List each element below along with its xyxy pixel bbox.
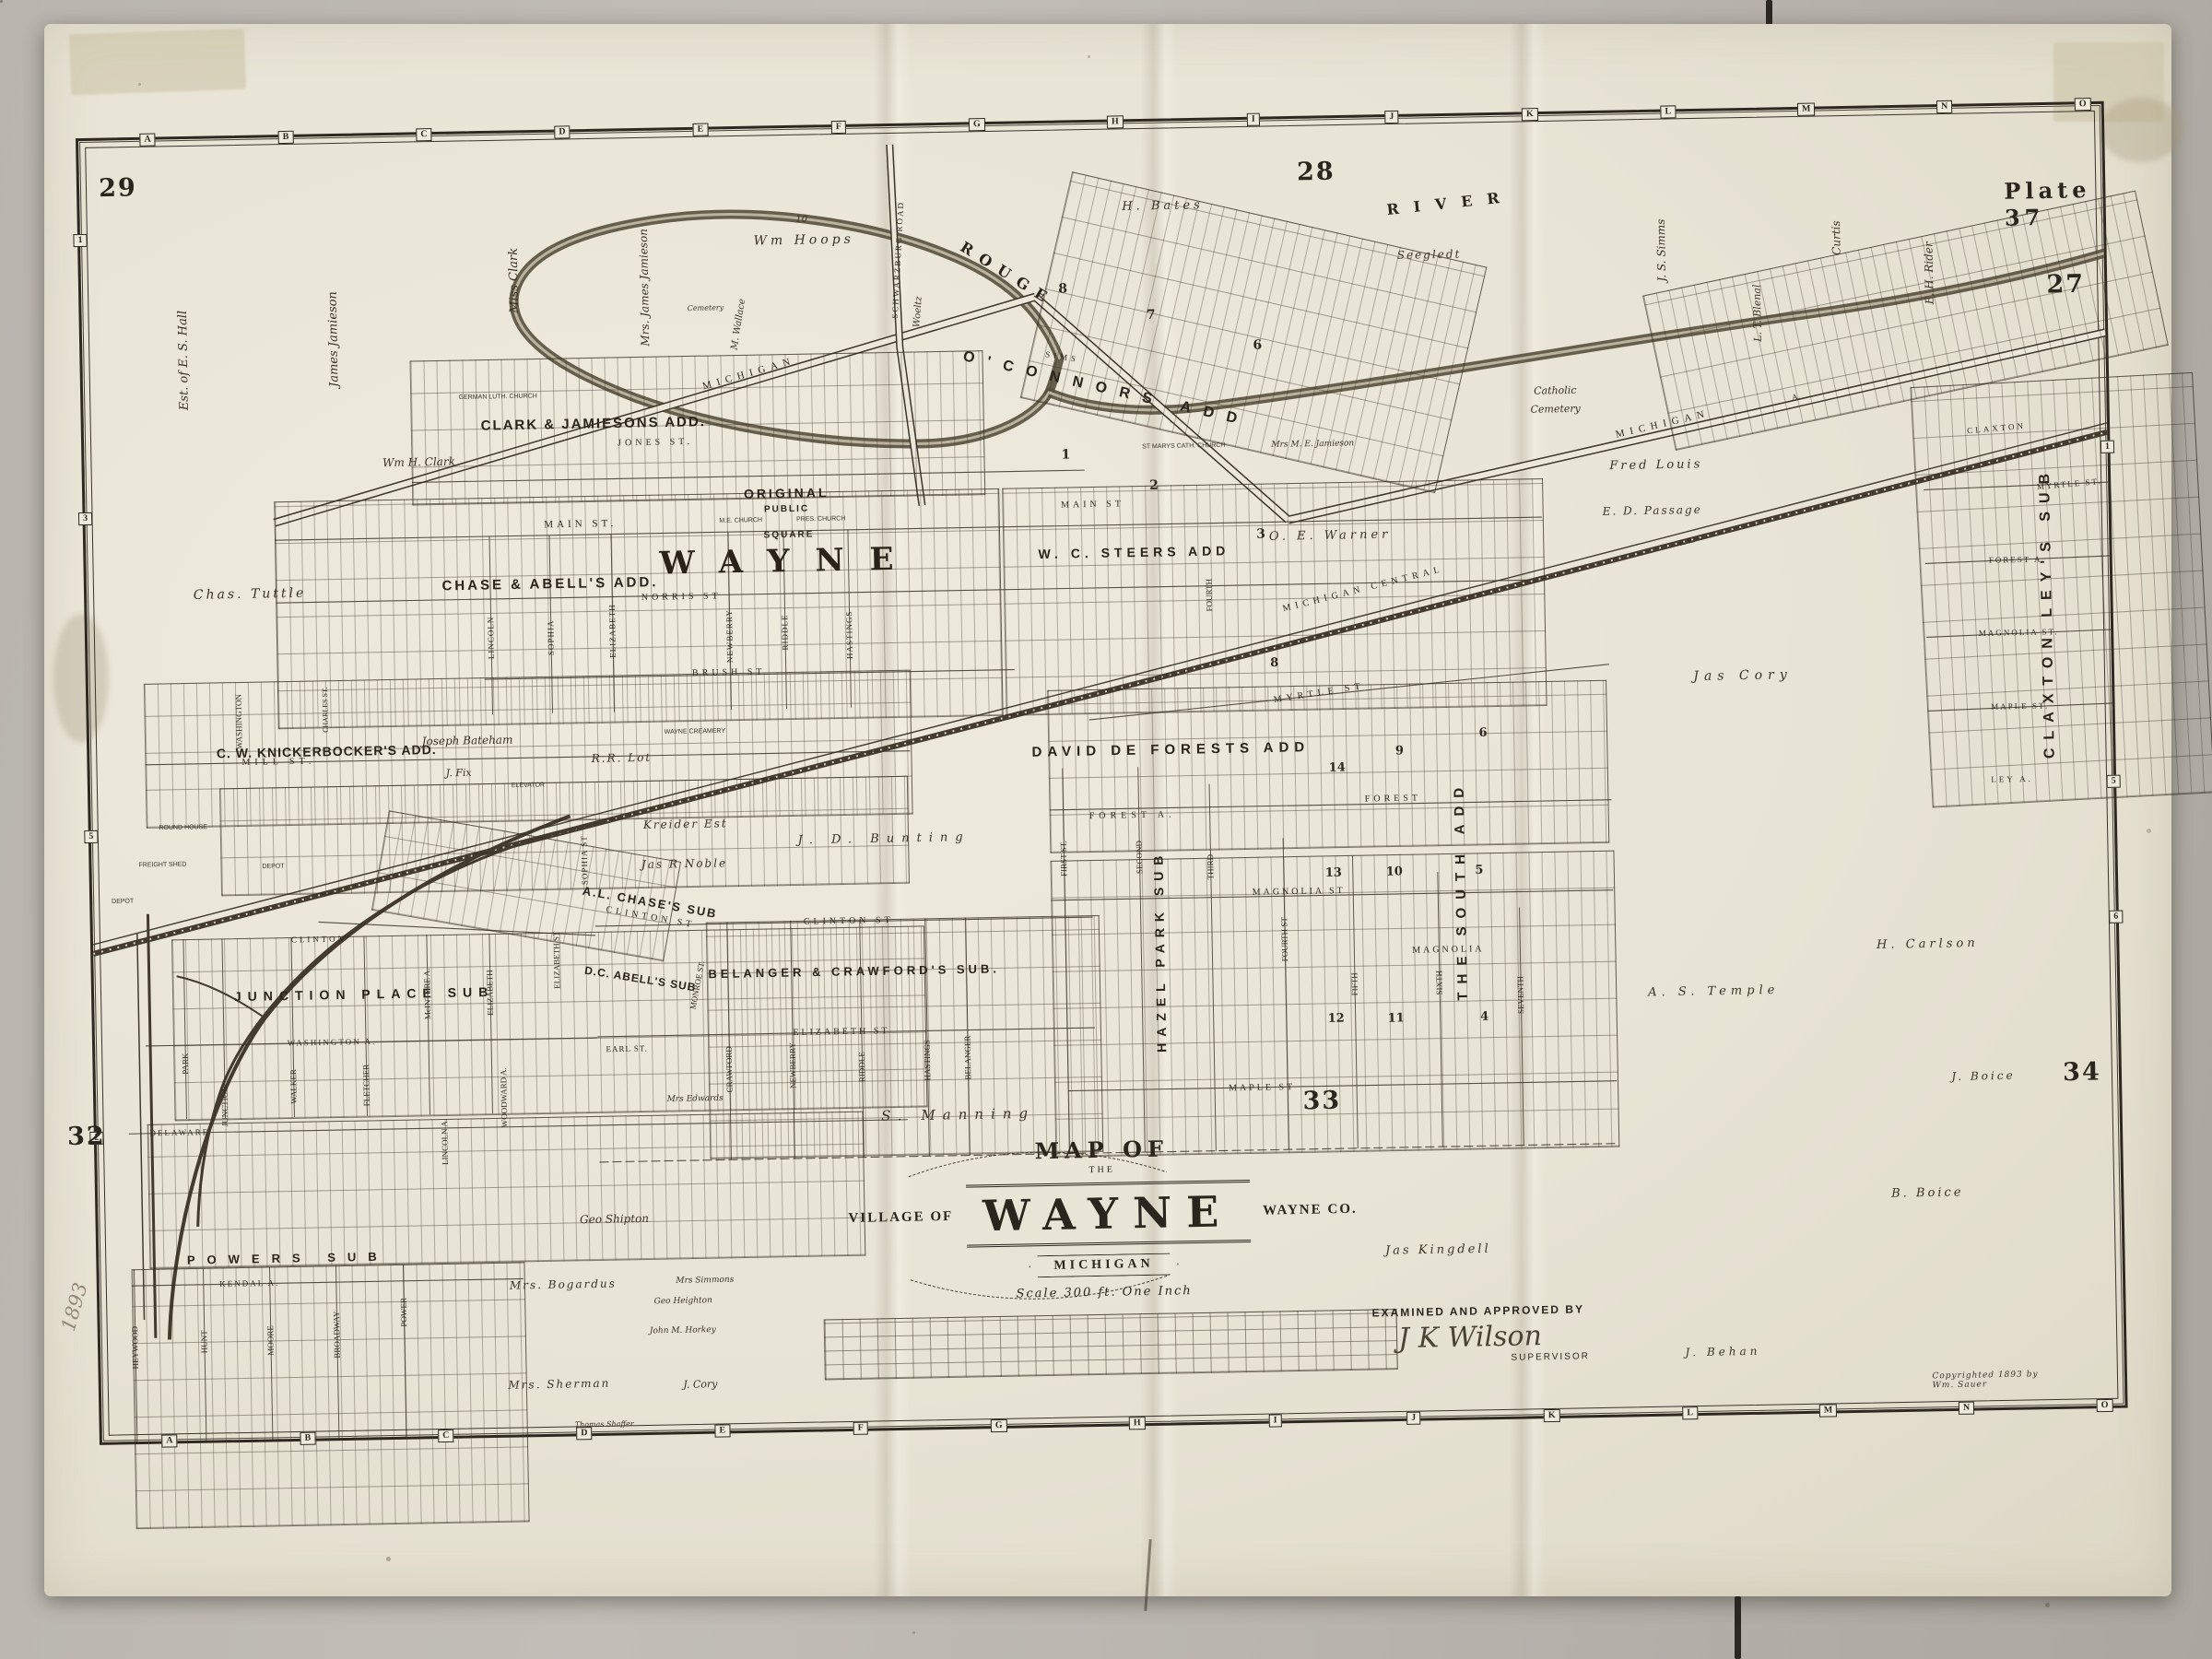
label-mrs-me-jamieson: Mrs M. E. Jamieson	[1271, 440, 1354, 450]
border-letter-top-A: A	[139, 134, 155, 147]
label-j-d-bunting: J. D. Bunting	[797, 831, 970, 846]
label-sophia-v: SOPHIA	[547, 619, 556, 655]
label-forest-e: FOREST	[1365, 794, 1421, 804]
label-square: SQUARE	[764, 531, 815, 541]
label-depot-1: DEPOT	[262, 864, 284, 870]
label-clinton-st-c: CLINTON ST	[804, 916, 894, 927]
cartouche-county: WAYNE CO.	[1263, 1201, 1358, 1218]
dust-specks	[0, 0, 3, 3]
label-first-st-v: FIRST ST.	[1060, 841, 1069, 877]
label-h-bates: H. Bates	[1122, 199, 1204, 213]
label-charles-st-v: CHARLES ST.	[322, 688, 330, 733]
label-b-boice: B. Boice	[1891, 1186, 1964, 1199]
label-blk-8: 8	[1058, 282, 1067, 295]
border-number-right-6: 6	[2109, 911, 2123, 924]
label-jas-cory: Jas Cory	[1693, 668, 1793, 683]
label-mrs-simmons: Mrs Simmons	[676, 1277, 734, 1286]
label-magnolia-e: MAGNOLIA	[1412, 945, 1485, 955]
label-newberry-v: NEWBERRY	[725, 609, 735, 663]
label-mrs-edwards: Mrs Edwards	[667, 1095, 724, 1104]
label-fourth-v2: FOURTH	[1205, 579, 1214, 612]
label-blk-9: 9	[1395, 745, 1404, 757]
label-junction-v: JUNCTION	[220, 1086, 229, 1126]
label-blk-2: 2	[1149, 479, 1159, 492]
label-sec-34: 34	[2063, 1060, 2101, 1086]
label-pres-church: PRES. CHURCH	[796, 515, 845, 523]
label-elizabeth-st-c: ELIZABETH ST	[793, 1027, 889, 1038]
label-wm-hoops: Wm Hoops	[753, 233, 854, 248]
label-blk-6: 6	[1253, 339, 1262, 352]
border-letter-top-L: L	[1660, 105, 1676, 118]
label-sec-28: 28	[1297, 159, 1335, 185]
label-geo-shipton: Geo Shipton	[580, 1213, 649, 1225]
border-letter-bottom-B: B	[300, 1432, 315, 1445]
label-blk-13: 13	[1325, 867, 1342, 879]
label-jones-st: JONES ST.	[618, 438, 693, 448]
district-14	[1910, 372, 2212, 808]
label-blk-5: 5	[1475, 865, 1483, 877]
label-j-boice: J. Boice	[1951, 1070, 2015, 1082]
label-depot-2: DEPOT	[112, 899, 134, 905]
label-ley-a: LEY A.	[1991, 775, 2033, 784]
label-blk-7: 7	[1147, 309, 1156, 322]
label-blk-12: 12	[1328, 1013, 1345, 1025]
border-letter-bottom-I: I	[1269, 1414, 1282, 1427]
label-magnolia-st-w: MAGNOLIA ST	[1253, 887, 1346, 898]
label-chase-abells-add: CHASE & ABELL'S ADD.	[441, 575, 658, 593]
border-letter-top-I: I	[1247, 113, 1260, 126]
label-j-behan: J. Behan	[1685, 1346, 1760, 1359]
label-sec-33: 33	[1302, 1088, 1341, 1114]
label-fifth-v: FIFTH	[1350, 972, 1359, 995]
border-letter-top-M: M	[1797, 103, 1816, 116]
label-forest-a-r: FOREST A.	[1989, 556, 2046, 565]
label-belanger-v: BELANGER	[964, 1035, 973, 1079]
label-hastings-v: HASTINGS	[845, 610, 854, 659]
title-cartouche: MAP OF THE VILLAGE OF WAYNE WAYNE CO. MI…	[843, 1132, 1362, 1304]
label-fletcher-v: FLETCHER	[362, 1065, 371, 1107]
label-j-fix: J. Fix	[446, 768, 472, 779]
district-13	[132, 1262, 530, 1529]
label-forest-a-w: FOREST A.	[1089, 810, 1176, 821]
label-o-e-warner: O. E. Warner	[1269, 529, 1392, 543]
border-letter-top-D: D	[554, 125, 570, 138]
label-crawford-v: CRAWFORD	[725, 1046, 735, 1092]
label-seegledt: Seegledt	[1397, 249, 1462, 261]
label-mill-st: MILL ST.	[241, 757, 315, 767]
border-number-left-1: 1	[73, 234, 87, 247]
label-round-house: ROUND HOUSE	[159, 824, 207, 831]
label-blk-10: 10	[1386, 865, 1403, 877]
border-letter-bottom-M: M	[1819, 1404, 1838, 1417]
label-hunt-v: HUNT	[200, 1330, 208, 1353]
photo-of-map: 1893	[0, 0, 2212, 1659]
label-j-cory-2: J. Cory	[683, 1379, 717, 1390]
border-letter-bottom-A: A	[161, 1434, 177, 1447]
label-fred-louis: Fred Louis	[1609, 458, 1702, 472]
border-letter-bottom-J: J	[1406, 1412, 1420, 1425]
district-11	[171, 925, 927, 1121]
label-wc-steers-add: W. C. STEERS ADD	[1038, 544, 1230, 560]
border-letter-bottom-E: E	[714, 1424, 730, 1437]
label-michigan-a: A.	[1791, 393, 1801, 403]
border-letter-top-F: F	[831, 121, 846, 134]
tape-patch	[69, 29, 246, 96]
label-blk-4: 4	[1480, 1011, 1488, 1023]
label-j-s-simms: J. S. Simms	[1655, 219, 1667, 282]
border-letter-top-C: C	[416, 128, 431, 141]
border-letter-top-H: H	[1107, 115, 1124, 128]
border-letter-top-B: B	[278, 131, 294, 144]
label-washington-a: WASHINGTON A.	[288, 1038, 376, 1048]
label-riddle-v2: RIDDLE	[858, 1052, 867, 1082]
label-blk-1: 1	[1061, 448, 1070, 461]
label-elizabeth-v: ELIZABETH	[608, 604, 618, 658]
label-elizabeth-st-v3: ELIZABETH ST	[552, 931, 561, 988]
label-rr-lot: R.R. Lot	[592, 752, 653, 764]
label-heywood-v: HEYWOOD	[131, 1326, 140, 1370]
border-letter-bottom-N: N	[1959, 1402, 1974, 1415]
label-the-south-add: THE SOUTH ADD	[1453, 780, 1470, 1001]
label-earl-st: EARL ST.	[606, 1044, 648, 1053]
label-fourth-st-v: FOURTH ST	[1280, 917, 1289, 961]
border-letter-bottom-L: L	[1682, 1406, 1698, 1419]
label-cemetery2: Cemetery	[1530, 404, 1580, 415]
label-mrs-bogardus: Mrs. Bogardus	[510, 1278, 617, 1291]
label-h-carlson: H. Carlson	[1877, 937, 1979, 951]
label-blk-11: 11	[1388, 1012, 1405, 1024]
label-second-v: SECOND	[1135, 841, 1145, 874]
label-mcintyre-v: McINTYRE A.	[423, 968, 432, 1019]
label-park-v: PARK	[182, 1053, 190, 1074]
label-e-d-passage: E. D. Passage	[1603, 504, 1702, 517]
label-catholic: Catholic	[1534, 385, 1577, 396]
border-letter-bottom-C: C	[438, 1430, 453, 1442]
label-miss-clark: Miss Clark	[508, 248, 521, 313]
label-elizabeth-v2: ELIZABETH	[486, 970, 495, 1016]
label-main-st-w: MAIN ST.	[544, 519, 617, 530]
plate-number: Plate 37	[2004, 176, 2103, 231]
supervisor-signature: J K Wilson	[1398, 1318, 1677, 1356]
label-curtis: Curtis	[1830, 220, 1842, 255]
label-hazel-park-sub: HAZEL PARK SUB	[1151, 849, 1168, 1053]
border-letter-bottom-G: G	[991, 1419, 1007, 1432]
label-woodward-a-v: WOODWARD A.	[500, 1067, 509, 1127]
district-2	[1002, 478, 1547, 716]
label-seventh-v: SEVENTH	[1516, 976, 1525, 1014]
label-sixth-v: SIXTH	[1435, 971, 1443, 995]
label-washington-v: WASHINGTON	[235, 694, 244, 749]
label-blk-8b: 8	[1270, 657, 1278, 669]
label-freight-shed: FREIGHT SHED	[138, 862, 186, 869]
border-letter-top-E: E	[692, 124, 708, 136]
label-cemetery-sm: Cemetery	[688, 304, 724, 312]
label-hastings-v2: HASTINGS	[924, 1040, 933, 1081]
label-newberry-v2: NEWBERRY	[789, 1042, 798, 1088]
map-paper: 1893	[44, 24, 2171, 1596]
scale-grid	[824, 1309, 1398, 1380]
approval-block: EXAMINED AND APPROVED BY J K Wilson SUPE…	[1371, 1301, 1677, 1366]
label-s-manning: S. Manning	[881, 1107, 1035, 1124]
label-riddle-v: RIDDLE	[781, 615, 790, 651]
label-blk-3: 3	[1256, 528, 1265, 541]
border-letter-bottom-K: K	[1544, 1409, 1560, 1422]
handwritten-year: 1893	[57, 1280, 92, 1334]
label-main-st-e: MAIN ST	[1061, 500, 1124, 510]
border-letter-bottom-F: F	[853, 1422, 868, 1435]
label-wayne-creamery: WAYNE CREAMERY	[665, 728, 726, 735]
label-est-es-hall: Est. of E. S. Hall	[177, 311, 191, 411]
label-maple-st-r: MAPLE ST.	[1991, 701, 2049, 711]
label-lincoln-v: LINCOLN	[487, 617, 496, 660]
stain	[2100, 98, 2183, 162]
border-number-left-3: 3	[78, 512, 92, 525]
label-third-v: THIRD	[1206, 854, 1216, 880]
label-l-t-blenal: L. T. Blenal	[1752, 284, 1763, 341]
paper-tear	[1144, 1539, 1151, 1611]
label-norris-st: NORRIS ST	[641, 592, 722, 603]
label-wayne-big: WAYNE	[659, 543, 920, 579]
border-letter-top-O: O	[2075, 98, 2091, 111]
label-maple-st-c: MAPLE ST	[1229, 1083, 1295, 1093]
label-jas-kingdell: Jas Kingdell	[1385, 1243, 1491, 1257]
border-letter-top-G: G	[969, 118, 985, 131]
label-kendal-a: KENDAL A.	[219, 1279, 279, 1288]
label-clinton-bl: CLINTON	[291, 935, 347, 944]
copyright-line: Copyrighted 1893 by Wm. Sauer	[1932, 1370, 2060, 1391]
label-public: PUBLIC	[764, 505, 809, 515]
label-powers-sub: POWERS SUB	[187, 1251, 389, 1266]
map-frame: ABCDEFGHIJKLMNOABCDEFGHIJKLMNO1352156 29…	[76, 101, 2128, 1445]
label-mrs-sherman: Mrs. Sherman	[508, 1378, 610, 1391]
border-number-left-5: 5	[84, 830, 98, 843]
label-sophia-st-v2: SOPHIA ST	[580, 835, 589, 885]
label-thomas-shaffer: Thomas Shaffer	[575, 1420, 634, 1429]
cartouche-state: MICHIGAN	[1029, 1253, 1179, 1277]
cartouche-village-of: VILLAGE OF	[848, 1208, 953, 1226]
label-walker-v: WALKER	[289, 1069, 299, 1104]
label-blk-14: 14	[1329, 761, 1346, 773]
table-seam-bottom	[1735, 1596, 1741, 1659]
label-wm-h-clark: Wm H. Clark	[382, 456, 455, 468]
border-letter-top-N: N	[1936, 100, 1952, 113]
label-magnolia-st-r: MAGNOLIA ST.	[1979, 628, 2059, 638]
border-number-right-5: 5	[2107, 775, 2121, 788]
label-john-m-horkey: John M. Horkey	[650, 1326, 716, 1335]
label-original: ORIGINAL	[744, 486, 829, 500]
label-a-s-temple: A. S. Temple	[1648, 984, 1779, 999]
border-letter-top-K: K	[1522, 108, 1538, 121]
label-broadway-v: BROADWAY	[333, 1311, 342, 1358]
label-brush-st: BRUSH ST	[692, 668, 766, 678]
district-12	[147, 1112, 866, 1269]
label-blk-6b: 6	[1478, 727, 1487, 739]
label-sec-27: 27	[2046, 272, 2085, 298]
label-elevator: ELEVATOR	[512, 782, 545, 789]
label-me-church: M.E. CHURCH	[719, 517, 762, 524]
label-moore-v: MOORE	[266, 1325, 276, 1356]
border-letter-top-J: J	[1384, 111, 1398, 124]
border-number-right-1: 1	[2100, 441, 2114, 453]
label-lincoln-a-v: LINCOLN A.	[441, 1119, 450, 1165]
label-clark-jamiesons-add: CLARK & JAMIESONS ADD.	[481, 415, 707, 432]
cartouche-town-name: WAYNE	[982, 1186, 1234, 1241]
label-e-h-rider: E. H. Rider	[1923, 241, 1935, 304]
label-chas-tuttle: Chas. Tuttle	[194, 587, 307, 602]
label-geo-heighton: Geo Heighton	[654, 1297, 712, 1306]
label-delaware: DELAWARE	[149, 1128, 209, 1137]
label-wm-hoops-10: 10	[795, 216, 807, 225]
label-james-jamieson: James Jamieson	[327, 291, 341, 387]
label-mrs-james-jamieson: Mrs. James Jamieson	[638, 229, 651, 347]
label-power-v: POWER	[400, 1298, 409, 1327]
border-letter-bottom-O: O	[2097, 1399, 2113, 1412]
label-sec-29: 29	[99, 175, 137, 201]
label-sec-32: 32	[67, 1124, 106, 1149]
label-kreider-est: Kreider Est	[643, 818, 728, 830]
label-jas-r-noble: Jas R Noble	[641, 857, 727, 870]
border-letter-bottom-H: H	[1129, 1417, 1146, 1430]
